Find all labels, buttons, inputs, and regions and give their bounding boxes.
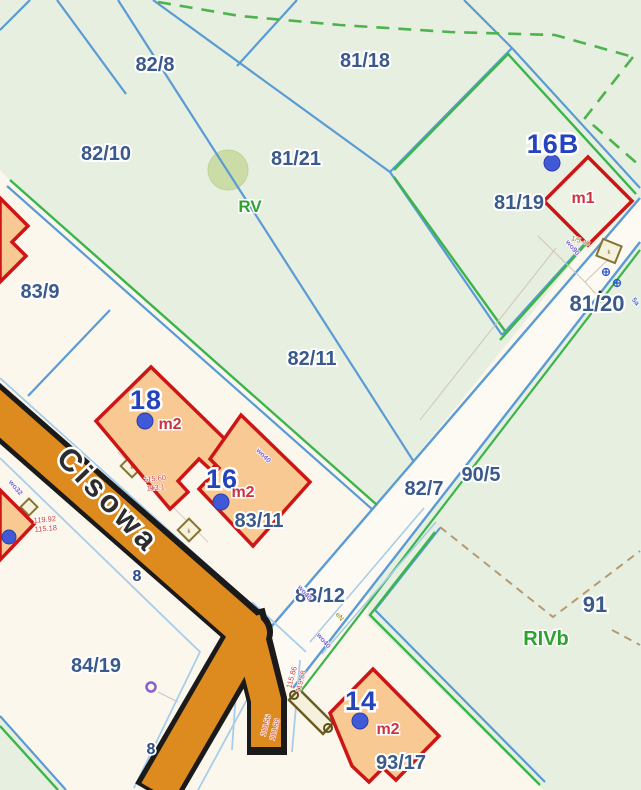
map-canvas[interactable]: k k k 82/8 81/18 82/10 81 xyxy=(0,0,641,790)
building-use-m1: m1 xyxy=(571,190,594,207)
parcel-label-81-18: 81/18 xyxy=(340,50,390,72)
parcel-label-81-19: 81/19 xyxy=(494,192,544,214)
parcel-label-91: 91 xyxy=(583,592,607,617)
building-number-14: 14 xyxy=(345,686,377,716)
parcel-label-81-20: 81/20 xyxy=(569,291,624,316)
house-number-8b: 8 xyxy=(147,741,156,758)
soil-label-rivb: RIVb xyxy=(523,628,569,650)
cadastral-map[interactable]: k k k 82/8 81/18 82/10 81 xyxy=(0,0,641,790)
building-use-m2-14: m2 xyxy=(376,721,399,738)
address-dot-18 xyxy=(137,413,153,429)
parcel-label-82-11: 82/11 xyxy=(288,348,337,370)
parcel-label-82-7: 82/7 xyxy=(405,478,444,500)
parcel-label-83-11: 83/11 xyxy=(235,510,284,532)
soil-label-rv: RV xyxy=(238,197,262,216)
parcel-label-81-21: 81/21 xyxy=(271,148,321,170)
house-number-8a: 8 xyxy=(133,568,142,585)
parcel-label-93-17: 93/17 xyxy=(376,752,426,774)
parcel-label-90-5: 90/5 xyxy=(462,464,501,486)
parcel-label-83-9: 83/9 xyxy=(21,281,60,303)
building-number-18: 18 xyxy=(130,385,162,415)
building-use-m2-16: m2 xyxy=(231,484,254,501)
building-number-16B: 16B xyxy=(527,129,580,159)
parcel-label-82-10: 82/10 xyxy=(81,143,131,165)
parcel-label-84-19: 84/19 xyxy=(71,655,121,677)
address-dot-sw xyxy=(2,530,16,544)
measurement-r1b: 113.1 xyxy=(146,482,165,493)
building-use-m2-18: m2 xyxy=(158,416,181,433)
address-dot-16 xyxy=(213,494,229,510)
parcel-label-82-8: 82/8 xyxy=(136,54,175,76)
